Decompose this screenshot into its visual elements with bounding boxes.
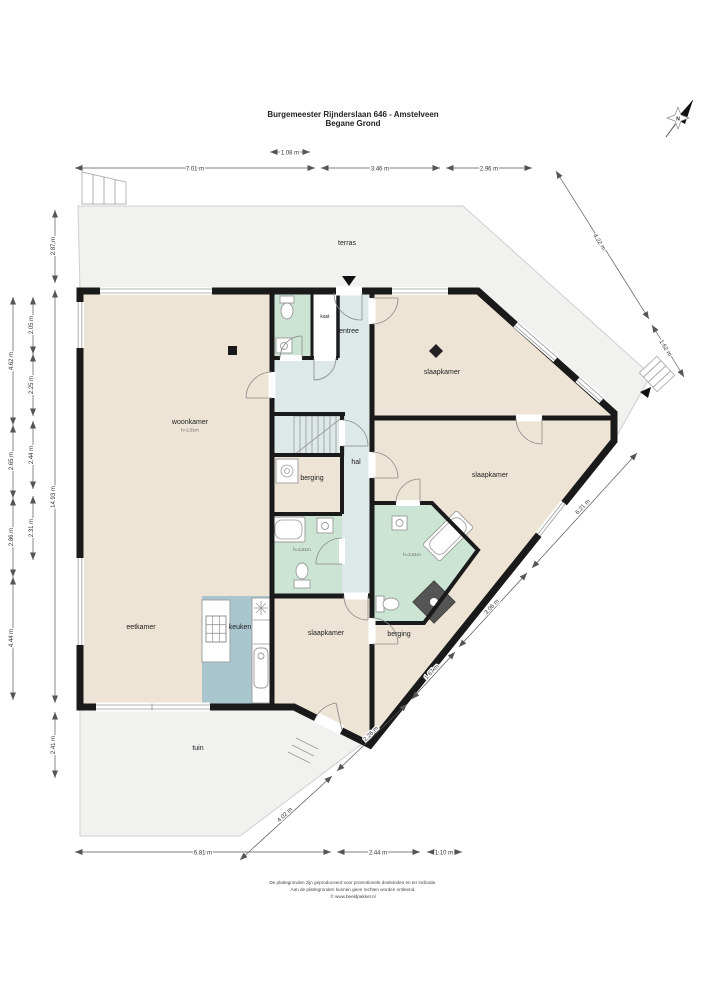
fridge-icon xyxy=(254,601,268,615)
dim-right-diag-1: 4.22 m xyxy=(556,171,649,319)
dim-door-width: 1.08 m xyxy=(270,151,310,157)
room-label-terras: terras xyxy=(338,240,356,247)
window-slaapkamer1-top xyxy=(392,289,448,293)
dim-left-outer-3: 2.86 m xyxy=(9,498,15,577)
svg-text:2.05 m: 2.05 m xyxy=(29,316,35,334)
toilet-icon xyxy=(280,296,294,319)
svg-text:4.44 m: 4.44 m xyxy=(9,629,15,647)
washbasin-icon xyxy=(392,516,407,530)
svg-text:4.22 m: 4.22 m xyxy=(591,233,606,252)
room-label-kast: kast xyxy=(320,314,330,320)
dim-top-1: 7.01 m xyxy=(75,167,315,173)
dim-left-middle-4: 2.31 m xyxy=(29,496,35,560)
room-label-keuken: keuken xyxy=(229,624,252,631)
svg-text:2.87 m: 2.87 m xyxy=(51,237,57,255)
room-label-berging-rechts: berging xyxy=(387,631,410,638)
dim-left-middle-2: 2.25 m xyxy=(29,354,35,416)
floorplan-page: Burgemeester Rijnderslaan 646 - Amstelve… xyxy=(0,0,707,1000)
tuin-area xyxy=(80,710,362,836)
dim-top-3: 2.96 m xyxy=(446,167,532,173)
svg-text:3.46 m: 3.46 m xyxy=(371,167,389,173)
dim-left-middle-3: 2.44 m xyxy=(29,421,35,489)
room-label-eetkamer: eetkamer xyxy=(126,624,156,631)
room-label-slaapkamer-2: slaapkamer xyxy=(472,472,509,479)
svg-text:2.41 m: 2.41 m xyxy=(51,736,57,754)
north-compass-icon: N xyxy=(666,100,693,137)
footer-disclaimer-1: De plattegronden zijn geproduceerd voor … xyxy=(269,880,436,885)
svg-text:14.93 m: 14.93 m xyxy=(51,486,57,508)
svg-text:1.08 m: 1.08 m xyxy=(281,151,299,157)
window-woonkamer-west xyxy=(78,302,82,348)
svg-text:2.65 m: 2.65 m xyxy=(9,452,15,470)
dim-left-outer-4: 4.44 m xyxy=(9,577,15,700)
svg-text:1.10 m: 1.10 m xyxy=(435,851,453,857)
dim-left-outer-2: 2.65 m xyxy=(9,425,15,498)
window-woonkamer-top xyxy=(100,289,212,293)
svg-text:2.44 m: 2.44 m xyxy=(369,851,387,857)
washing-machine-icon xyxy=(276,459,298,483)
footer-copyright: © www.beeldpakket.nl xyxy=(330,893,375,899)
svg-text:2.86 m: 2.86 m xyxy=(9,528,15,546)
room-label-berging-hal: berging xyxy=(300,475,323,482)
exterior-stairs-left-icon xyxy=(82,172,126,204)
svg-text:4.02 m: 4.02 m xyxy=(277,807,294,824)
room-height-woonkamer: h=2,91m xyxy=(181,428,199,433)
dim-left-inner-1: 2.87 m xyxy=(51,210,57,283)
svg-text:2.25 m: 2.25 m xyxy=(29,376,35,394)
room-label-tuin: tuin xyxy=(192,745,203,752)
dim-left-inner-3: 2.41 m xyxy=(51,712,57,778)
dim-bottom-3: 1.10 m xyxy=(427,851,462,857)
sliding-door-tuin xyxy=(96,704,210,711)
room-label-slaapkamer-1: slaapkamer xyxy=(424,369,461,376)
svg-text:2.44 m: 2.44 m xyxy=(29,446,35,464)
room-height-badkamer-2: h=2,61m xyxy=(403,552,421,557)
bathtub-icon xyxy=(272,517,305,542)
dim-left-middle-1: 2.05 m xyxy=(29,297,35,354)
room-label-slaapkamer-3: slaapkamer xyxy=(308,630,345,637)
dim-left-outer-1: 4.62 m xyxy=(9,297,15,425)
room-label-woonkamer: woonkamer xyxy=(171,419,209,426)
svg-text:1.62 m: 1.62 m xyxy=(657,339,672,358)
kast-floor xyxy=(312,293,338,358)
footer-disclaimer-2: Aan de plattegronden kunnen geen rechten… xyxy=(291,887,416,892)
svg-text:4.62 m: 4.62 m xyxy=(9,352,15,370)
dim-bottom-1: 6.81 m xyxy=(75,851,331,857)
room-height-badkamer-1: h=2,61m xyxy=(293,547,311,552)
svg-text:7.01 m: 7.01 m xyxy=(186,167,204,173)
svg-text:2.96 m: 2.96 m xyxy=(480,167,498,173)
washbasin-icon xyxy=(317,518,333,533)
kitchen-sink-icon xyxy=(254,648,268,688)
dim-bottom-2: 2.44 m xyxy=(337,851,420,857)
floorplan-svg: Burgemeester Rijnderslaan 646 - Amstelve… xyxy=(0,0,707,1000)
svg-text:2.31 m: 2.31 m xyxy=(29,519,35,537)
compass-north-label: N xyxy=(676,117,680,123)
svg-text:6.81 m: 6.81 m xyxy=(194,851,212,857)
page-title-address: Burgemeester Rijnderslaan 646 - Amstelve… xyxy=(267,110,438,119)
window-eetkamer-west xyxy=(78,558,82,645)
page-title-floor: Begane Grond xyxy=(325,119,380,128)
dim-top-2: 3.46 m xyxy=(321,167,440,173)
svg-text:6.21 m: 6.21 m xyxy=(575,499,592,517)
fireplace-icon xyxy=(228,346,237,355)
room-label-hal: hal xyxy=(351,459,361,466)
dim-left-inner-2: 14.93 m xyxy=(51,290,57,703)
room-label-entree: entree xyxy=(339,328,359,335)
kitchen-island xyxy=(202,600,230,662)
